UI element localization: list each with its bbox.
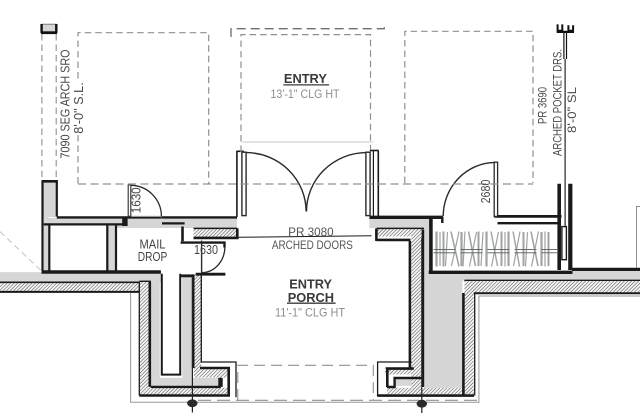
- svg-text:1630: 1630: [128, 187, 143, 213]
- svg-text:PR 3080: PR 3080: [288, 225, 334, 239]
- svg-text:13'-1" CLG HT: 13'-1" CLG HT: [271, 87, 341, 101]
- svg-text:8'-0" S.L.: 8'-0" S.L.: [71, 82, 86, 134]
- svg-text:PR 3690: PR 3690: [536, 87, 550, 124]
- svg-text:1630: 1630: [194, 242, 218, 257]
- svg-text:2680: 2680: [478, 180, 493, 204]
- svg-text:ARCHED POCKET DRS.: ARCHED POCKET DRS.: [551, 49, 565, 156]
- svg-text:DROP: DROP: [138, 249, 168, 264]
- svg-text:11'-1" CLG HT: 11'-1" CLG HT: [275, 306, 346, 320]
- svg-text:ENTRY: ENTRY: [284, 71, 327, 86]
- svg-text:ARCHED DOORS: ARCHED DOORS: [272, 238, 353, 252]
- svg-text:8'-0" SL: 8'-0" SL: [565, 87, 579, 133]
